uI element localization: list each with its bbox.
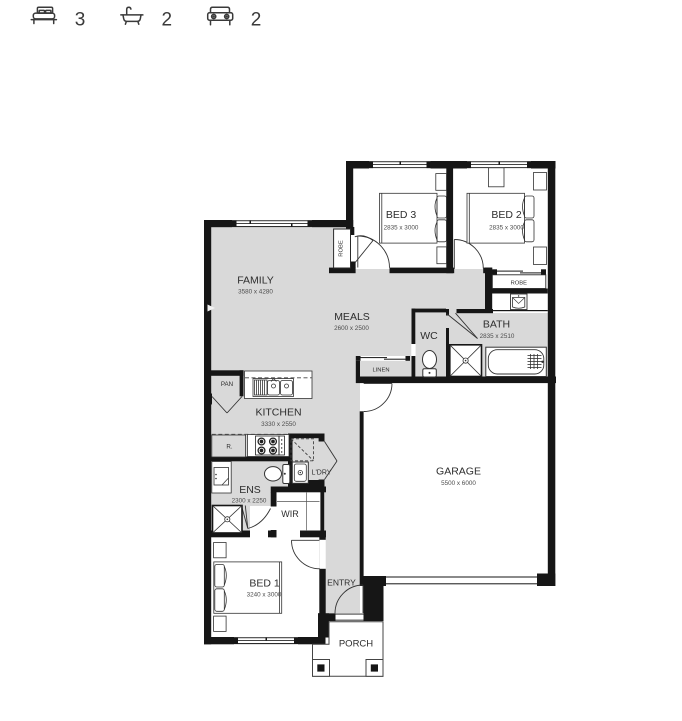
svg-text:2: 2 xyxy=(251,9,262,30)
svg-text:ROBE: ROBE xyxy=(511,281,528,287)
svg-text:BED 3: BED 3 xyxy=(386,209,417,221)
svg-text:2835 x 2510: 2835 x 2510 xyxy=(480,333,515,340)
svg-text:PAN: PAN xyxy=(221,381,233,388)
svg-text:FAMILY: FAMILY xyxy=(237,275,274,287)
svg-text:3330 x 2550: 3330 x 2550 xyxy=(261,421,296,428)
svg-text:ENS: ENS xyxy=(239,484,261,496)
svg-text:BED 1: BED 1 xyxy=(249,578,280,590)
svg-text:MEALS: MEALS xyxy=(334,311,370,323)
svg-text:WIR: WIR xyxy=(281,509,299,519)
svg-text:3: 3 xyxy=(75,9,86,30)
svg-text:L'DRY: L'DRY xyxy=(312,470,332,477)
svg-text:ROBE: ROBE xyxy=(338,240,344,257)
svg-text:WC: WC xyxy=(420,330,438,342)
svg-text:3580 x 4280: 3580 x 4280 xyxy=(238,289,273,296)
svg-text:2835 x 3000: 2835 x 3000 xyxy=(384,225,419,232)
svg-text:KITCHEN: KITCHEN xyxy=(255,407,301,419)
svg-text:2835 x 3000: 2835 x 3000 xyxy=(489,225,524,232)
svg-text:LINEN: LINEN xyxy=(372,368,389,374)
svg-text:2300 x 2250: 2300 x 2250 xyxy=(232,498,267,505)
svg-text:R.: R. xyxy=(226,444,232,451)
svg-text:PORCH: PORCH xyxy=(339,639,373,650)
svg-text:GARAGE: GARAGE xyxy=(436,466,481,478)
svg-text:ENTRY: ENTRY xyxy=(327,578,356,588)
svg-text:5500 x 6000: 5500 x 6000 xyxy=(441,480,476,487)
svg-text:BED 2: BED 2 xyxy=(491,209,522,221)
svg-text:BATH: BATH xyxy=(483,319,510,331)
svg-text:2: 2 xyxy=(162,9,173,30)
svg-text:2600 x 2500: 2600 x 2500 xyxy=(334,325,369,332)
svg-text:3240 x 3000: 3240 x 3000 xyxy=(247,592,282,599)
